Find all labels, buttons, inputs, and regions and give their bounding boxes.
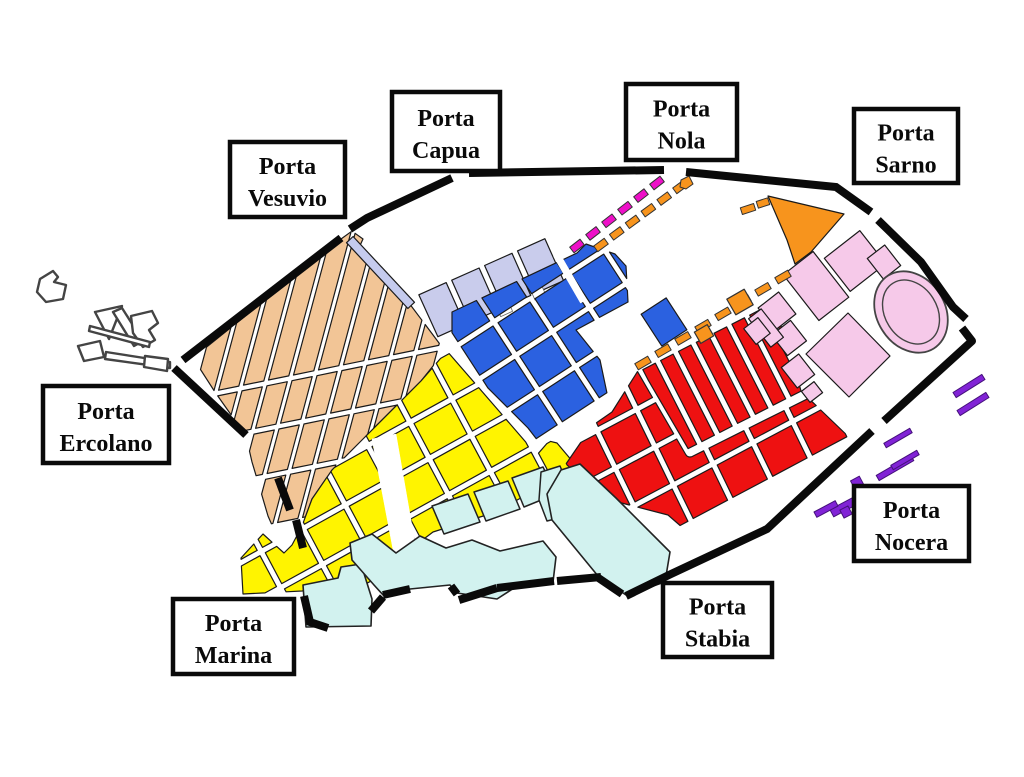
svg-text:Porta: Porta — [259, 154, 316, 180]
svg-text:Ercolano: Ercolano — [60, 431, 153, 457]
svg-text:Porta: Porta — [689, 595, 746, 621]
svg-text:Sarno: Sarno — [875, 153, 936, 179]
svg-text:Porta: Porta — [205, 611, 262, 637]
svg-text:Nocera: Nocera — [875, 530, 948, 556]
svg-text:Porta: Porta — [77, 399, 134, 425]
svg-text:Stabia: Stabia — [685, 627, 750, 653]
svg-text:Porta: Porta — [653, 97, 710, 123]
svg-text:Marina: Marina — [195, 643, 272, 669]
svg-text:Nola: Nola — [658, 129, 706, 155]
svg-text:Capua: Capua — [412, 138, 480, 164]
svg-text:Porta: Porta — [877, 121, 934, 147]
svg-text:Vesuvio: Vesuvio — [248, 186, 327, 212]
svg-text:Porta: Porta — [883, 498, 940, 524]
svg-text:Porta: Porta — [417, 106, 474, 132]
